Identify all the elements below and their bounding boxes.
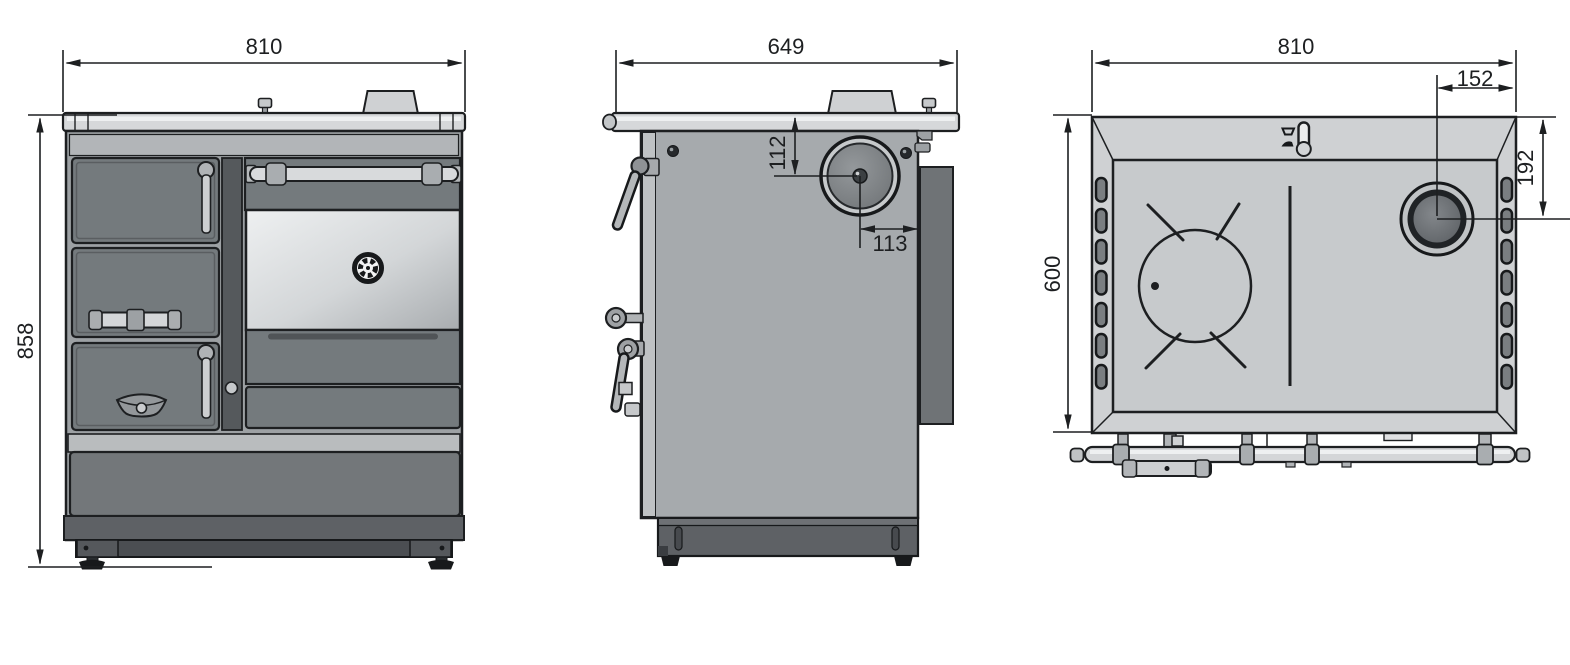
side-flue-collar	[828, 91, 896, 114]
firebox-door	[72, 158, 219, 243]
dim-label-top-flue-back: 192	[1515, 150, 1537, 187]
ash-door	[72, 343, 219, 430]
storage-drawer	[70, 452, 460, 516]
oven-lower-drawer	[246, 387, 460, 428]
side-cooktop-rail	[603, 113, 959, 131]
oven-thermometer-icon	[355, 255, 382, 282]
dim-label-front-width: 810	[246, 36, 283, 58]
adjustable-foot-right	[428, 557, 454, 570]
back-bracket	[915, 143, 930, 152]
rail-handle	[1123, 460, 1212, 477]
dim-label-top-width: 810	[1278, 36, 1315, 58]
oven-lower-band	[246, 330, 460, 384]
top-view-drawing	[1053, 50, 1570, 477]
front-top-knob	[259, 99, 272, 115]
dim-label-top-depth: 600	[1042, 256, 1064, 293]
oven-top-band	[245, 158, 461, 210]
side-plinth	[658, 518, 918, 556]
side-foot-front	[661, 556, 680, 566]
middle-door	[72, 248, 219, 337]
vent-slots-right	[1502, 178, 1513, 389]
middle-door-knob	[606, 308, 643, 328]
dim-label-top-flue-right: 152	[1457, 68, 1494, 90]
rating-plate	[1384, 434, 1412, 441]
side-view-drawing	[603, 50, 959, 566]
drawing-linework	[0, 0, 1570, 665]
rear-heat-shield	[920, 167, 953, 424]
dim-label-side-flue-back: 113	[872, 233, 907, 255]
front-top-rail	[63, 113, 465, 131]
dim-label-side-flue-top: 112	[767, 135, 789, 170]
base-frame	[76, 540, 452, 557]
front-header-band	[70, 135, 459, 156]
side-foot-rear	[894, 556, 913, 566]
plinth	[64, 516, 464, 540]
front-view-drawing	[28, 50, 465, 570]
top-front-rail	[1071, 434, 1530, 478]
vent-slots-left	[1096, 178, 1107, 389]
latch-screw	[226, 382, 238, 394]
side-top-knob	[923, 99, 936, 115]
front-flue-collar	[363, 91, 418, 114]
dim-label-front-height: 858	[15, 323, 37, 360]
stove-dimensional-drawing: 810 858 649 112 113 810 152 192 600	[0, 0, 1570, 665]
trim-strip	[68, 434, 460, 452]
side-front-edge	[643, 133, 656, 517]
dim-label-side-depth: 649	[768, 36, 805, 58]
